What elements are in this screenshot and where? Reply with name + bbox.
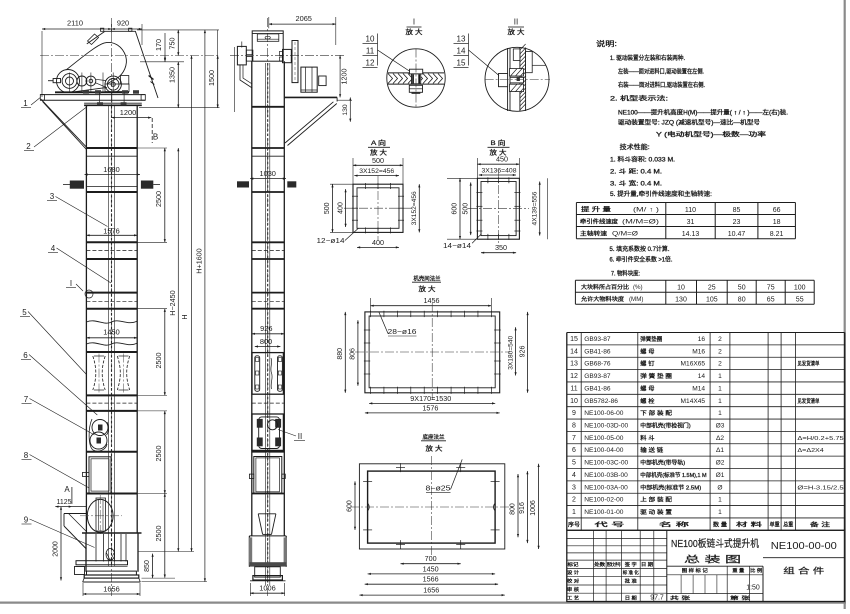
svg-text:螺 母: 螺 母 xyxy=(640,347,654,355)
svg-text:H: H xyxy=(180,314,189,319)
svg-text:GB68-76: GB68-76 xyxy=(584,361,611,368)
svg-text:4: 4 xyxy=(572,472,576,479)
svg-text:放 大: 放 大 xyxy=(426,444,444,453)
svg-text:100: 100 xyxy=(794,285,806,292)
svg-text:数 量: 数 量 xyxy=(713,520,727,528)
svg-text:1656: 1656 xyxy=(423,586,439,595)
svg-text:9: 9 xyxy=(572,410,576,417)
svg-text:9: 9 xyxy=(24,516,29,525)
svg-text:B 向: B 向 xyxy=(491,138,506,147)
svg-text:700: 700 xyxy=(425,554,437,563)
svg-text:2110: 2110 xyxy=(67,19,83,28)
svg-text:4X139=556: 4X139=556 xyxy=(531,191,538,225)
svg-text:2: 2 xyxy=(26,142,31,151)
svg-text:75: 75 xyxy=(767,285,775,292)
svg-text:1576: 1576 xyxy=(422,403,438,412)
svg-text:签 字: 签 字 xyxy=(625,561,637,567)
svg-text:23: 23 xyxy=(733,219,741,226)
svg-text:GB5782-86: GB5782-86 xyxy=(584,398,618,405)
svg-text:输 送 链: 输 送 链 xyxy=(640,446,663,454)
svg-text:10: 10 xyxy=(677,285,685,292)
svg-text:见发货清单: 见发货清单 xyxy=(797,397,819,405)
svg-text:标记: 标记 xyxy=(568,561,579,568)
svg-text:技术性能:: 技术性能: xyxy=(620,142,650,151)
svg-text:12: 12 xyxy=(570,373,578,380)
svg-text:组 合 件: 组 合 件 xyxy=(783,566,824,576)
svg-text:总 装 图: 总 装 图 xyxy=(684,554,741,565)
svg-text:11: 11 xyxy=(366,47,375,56)
svg-text:审 核: 审 核 xyxy=(567,586,579,593)
svg-text:920: 920 xyxy=(117,19,129,28)
svg-text:105: 105 xyxy=(706,297,718,304)
svg-text:2. 斗 距: 0.4 M.: 2. 斗 距: 0.4 M. xyxy=(610,169,662,176)
svg-text:10.47: 10.47 xyxy=(728,231,746,238)
svg-text:B: B xyxy=(153,133,158,142)
svg-text:12−ø14: 12−ø14 xyxy=(317,238,345,245)
svg-text:31: 31 xyxy=(687,219,695,226)
svg-text:6: 6 xyxy=(23,351,28,360)
svg-text:350: 350 xyxy=(495,243,507,252)
svg-text:(M/ ↑ ): (M/ ↑ ) xyxy=(633,208,659,214)
svg-text:13: 13 xyxy=(570,361,578,368)
svg-text:1200: 1200 xyxy=(340,69,349,85)
svg-text:2500: 2500 xyxy=(154,446,163,462)
svg-text:1. 料斗容积: 0.033 M.: 1. 料斗容积: 0.033 M. xyxy=(610,156,675,164)
svg-text:2. 机型表示法:: 2. 机型表示法: xyxy=(610,95,668,103)
svg-text:3X152=456: 3X152=456 xyxy=(359,168,394,175)
svg-text:重 量: 重 量 xyxy=(732,567,744,574)
svg-text:1: 1 xyxy=(718,509,722,516)
svg-text:Δ2: Δ2 xyxy=(716,435,724,442)
svg-text:NE100-00-00: NE100-00-00 xyxy=(771,540,837,552)
svg-text:110: 110 xyxy=(685,207,696,214)
svg-text:NE100-06-00: NE100-06-00 xyxy=(584,410,624,417)
svg-text:II: II xyxy=(514,18,518,27)
svg-text:NE100-04-00: NE100-04-00 xyxy=(584,447,624,454)
svg-text:850: 850 xyxy=(144,560,151,572)
svg-text:2: 2 xyxy=(718,361,722,368)
svg-text:更改文件号: 更改文件号 xyxy=(607,561,621,568)
svg-text:GB41-86: GB41-86 xyxy=(584,385,611,392)
svg-text:500: 500 xyxy=(462,203,469,215)
svg-text:400: 400 xyxy=(337,202,344,214)
svg-text:NE100-05-00: NE100-05-00 xyxy=(584,435,624,442)
svg-text:标 准 化: 标 准 化 xyxy=(623,569,639,576)
svg-text:Δ=H/0.2+5.75: Δ=H/0.2+5.75 xyxy=(797,436,843,442)
svg-text:(%): (%) xyxy=(633,284,643,291)
svg-text:8: 8 xyxy=(24,451,29,460)
svg-text:80: 80 xyxy=(738,297,746,304)
svg-text:1680: 1680 xyxy=(103,165,119,174)
svg-text:9X170=1530: 9X170=1530 xyxy=(410,394,451,403)
svg-text:下 部 装 配: 下 部 装 配 xyxy=(640,409,672,417)
svg-text:H−2450: H−2450 xyxy=(168,290,177,315)
svg-text:15: 15 xyxy=(457,59,466,68)
svg-text:A 向: A 向 xyxy=(371,138,386,147)
svg-text:H+1600: H+1600 xyxy=(194,248,203,273)
svg-text:8−ø25: 8−ø25 xyxy=(426,483,451,492)
svg-text:(M/M=Ø): (M/M=Ø) xyxy=(622,220,659,226)
svg-text:主轴转速: 主轴转速 xyxy=(580,230,607,238)
svg-text:底座法兰: 底座法兰 xyxy=(423,433,445,441)
svg-text:3. 斗 宽: 0.4 M.: 3. 斗 宽: 0.4 M. xyxy=(610,180,662,188)
svg-text:Δ1: Δ1 xyxy=(716,447,724,454)
svg-text:1450: 1450 xyxy=(423,564,439,573)
svg-text:1: 1 xyxy=(718,398,722,405)
svg-text:18: 18 xyxy=(773,219,781,226)
svg-text:2000: 2000 xyxy=(53,541,60,557)
svg-text:800: 800 xyxy=(510,503,517,515)
svg-text:1350: 1350 xyxy=(168,67,177,83)
svg-text:800: 800 xyxy=(260,337,272,346)
svg-text:600: 600 xyxy=(346,500,353,512)
svg-text:NE100-03D-00: NE100-03D-00 xyxy=(584,423,628,430)
svg-text:600: 600 xyxy=(452,203,459,215)
svg-text:图 样 标 记: 图 样 标 记 xyxy=(682,567,708,574)
svg-text:1200: 1200 xyxy=(120,108,136,117)
svg-text:7. 物料块度:: 7. 物料块度: xyxy=(611,270,640,278)
svg-text:弹簧垫圈: 弹簧垫圈 xyxy=(640,335,662,343)
svg-text:2: 2 xyxy=(718,336,722,343)
svg-text:880: 880 xyxy=(337,348,344,360)
svg-text:1:50: 1:50 xyxy=(746,585,760,592)
svg-text:1: 1 xyxy=(718,373,722,380)
svg-text:右装——面对进料口,驱动装置在右侧.: 右装——面对进料口,驱动装置在右侧. xyxy=(618,81,705,89)
svg-text:1: 1 xyxy=(718,497,722,504)
svg-text:4: 4 xyxy=(51,244,56,253)
svg-text:GB93-87: GB93-87 xyxy=(584,336,611,343)
svg-text:批 准: 批 准 xyxy=(625,578,637,585)
svg-text:说明:: 说明: xyxy=(596,39,617,48)
svg-text:10: 10 xyxy=(366,35,375,44)
svg-text:2500: 2500 xyxy=(154,526,163,542)
svg-text:14: 14 xyxy=(698,373,706,380)
svg-text:中部机壳(带导轨): 中部机壳(带导轨) xyxy=(640,459,685,467)
svg-text:500: 500 xyxy=(372,156,384,165)
svg-text:放 大: 放 大 xyxy=(508,27,526,36)
svg-text:16: 16 xyxy=(698,336,706,343)
svg-text:GB93-87: GB93-87 xyxy=(584,373,611,380)
svg-text:驱动装置型号: JZQ (减速机型号)—速比—机型号: 驱动装置型号: JZQ (减速机型号)—速比—机型号 xyxy=(618,119,760,127)
svg-text:工 艺: 工 艺 xyxy=(567,595,579,601)
svg-text:大块料所占百分比: 大块料所占百分比 xyxy=(581,283,629,291)
svg-text:NE100-03B-00: NE100-03B-00 xyxy=(584,472,628,479)
svg-text:名 称: 名 称 xyxy=(659,520,689,528)
svg-text:螺 钉: 螺 钉 xyxy=(640,360,654,368)
svg-text:Ø1: Ø1 xyxy=(716,472,725,479)
svg-text:400: 400 xyxy=(372,238,384,247)
svg-text:M16X65: M16X65 xyxy=(681,361,706,368)
svg-text:序号: 序号 xyxy=(568,520,580,528)
svg-text:Ø=H-3.15/2.5: Ø=H-3.15/2.5 xyxy=(797,485,843,491)
svg-text:GB41-86: GB41-86 xyxy=(584,348,611,355)
svg-text:2: 2 xyxy=(718,348,722,355)
svg-text:5. 填充系数按 0.7计算.: 5. 填充系数按 0.7计算. xyxy=(610,245,670,253)
svg-text:6. 牵引件安全系数 >1倍.: 6. 牵引件安全系数 >1倍. xyxy=(610,256,673,264)
svg-text:总重: 总重 xyxy=(783,520,794,528)
svg-text:1: 1 xyxy=(718,410,722,417)
svg-text:5: 5 xyxy=(22,308,27,317)
svg-text:14.13: 14.13 xyxy=(682,231,700,238)
svg-text:材 料: 材 料 xyxy=(736,520,762,528)
svg-text:Ø2: Ø2 xyxy=(716,460,725,467)
svg-text:共 张: 共 张 xyxy=(670,594,691,601)
svg-text:97.7: 97.7 xyxy=(650,595,664,602)
svg-text:Δ=Δ2X4: Δ=Δ2X4 xyxy=(797,448,823,454)
svg-text:螺 栓: 螺 栓 xyxy=(640,397,654,405)
svg-text:1576: 1576 xyxy=(103,227,119,236)
svg-text:12: 12 xyxy=(366,59,375,68)
svg-text:A: A xyxy=(64,485,70,494)
svg-text:Q/M=Ø: Q/M=Ø xyxy=(612,232,638,238)
svg-text:1450: 1450 xyxy=(103,328,119,337)
svg-text:55: 55 xyxy=(796,297,804,304)
svg-text:1656: 1656 xyxy=(103,585,119,594)
svg-text:1. 驱动装置分左装和右装两种.: 1. 驱动装置分左装和右装两种. xyxy=(610,54,685,62)
svg-text:2500: 2500 xyxy=(154,353,163,369)
svg-text:II: II xyxy=(298,432,302,441)
svg-text:2065: 2065 xyxy=(295,14,311,23)
svg-text:1456: 1456 xyxy=(424,296,440,305)
svg-text:3X136=408: 3X136=408 xyxy=(482,167,517,174)
svg-text:日 期: 日 期 xyxy=(625,595,637,601)
svg-text:916: 916 xyxy=(519,502,526,514)
svg-text:750: 750 xyxy=(168,38,177,50)
svg-text:见发货清单: 见发货清单 xyxy=(797,360,819,368)
svg-text:25: 25 xyxy=(708,285,716,292)
svg-text:NE100-03A-00: NE100-03A-00 xyxy=(584,484,628,491)
svg-text:NE100——提升机高度H(M)——提升量( ↑ / ↑: NE100——提升机高度H(M)——提升量( ↑ / ↑ )——左(右)装. xyxy=(618,109,788,117)
svg-text:806: 806 xyxy=(350,348,357,360)
svg-text:7: 7 xyxy=(24,395,29,404)
svg-text:校 对: 校 对 xyxy=(567,578,579,585)
svg-text:允许大物料块度: 允许大物料块度 xyxy=(581,295,624,303)
svg-text:放 大: 放 大 xyxy=(419,284,437,293)
svg-text:130: 130 xyxy=(342,104,349,116)
svg-text:处数: 处数 xyxy=(594,561,605,568)
svg-text:1566: 1566 xyxy=(423,575,439,584)
svg-text:M14X45: M14X45 xyxy=(681,398,706,405)
svg-text:Ø3: Ø3 xyxy=(716,423,725,430)
svg-text:Ø: Ø xyxy=(717,484,722,491)
svg-text:1: 1 xyxy=(718,385,722,392)
svg-text:170: 170 xyxy=(154,39,163,51)
svg-text:1006: 1006 xyxy=(530,500,537,516)
svg-text:5: 5 xyxy=(572,460,576,467)
svg-text:50: 50 xyxy=(738,285,746,292)
svg-text:比 例: 比 例 xyxy=(750,567,762,574)
svg-text:代 号: 代 号 xyxy=(595,520,625,528)
svg-text:3X152=456: 3X152=456 xyxy=(411,191,418,225)
svg-text:13: 13 xyxy=(457,35,466,44)
svg-text:提 升 量: 提 升 量 xyxy=(581,206,611,214)
svg-text:NE100板链斗式提升机: NE100板链斗式提升机 xyxy=(671,537,759,550)
svg-text:第 张: 第 张 xyxy=(730,594,751,601)
svg-text:5. 提升量,牵引件线速度和主轴转速:: 5. 提升量,牵引件线速度和主轴转速: xyxy=(610,190,712,198)
svg-text:8.21: 8.21 xyxy=(770,231,784,238)
svg-text:1006: 1006 xyxy=(259,584,275,593)
svg-text:NE100-02-00: NE100-02-00 xyxy=(584,497,624,504)
svg-text:M14: M14 xyxy=(692,385,705,392)
svg-text:左装——面对进料口,驱动装置在左侧.: 左装——面对进料口,驱动装置在左侧. xyxy=(618,68,704,76)
svg-text:I: I xyxy=(413,18,415,27)
svg-text:28−ø16: 28−ø16 xyxy=(388,327,417,336)
svg-text:料 斗: 料 斗 xyxy=(640,434,654,442)
svg-text:放 大: 放 大 xyxy=(406,27,424,36)
svg-text:8: 8 xyxy=(572,423,576,430)
svg-text:单重: 单重 xyxy=(770,520,781,528)
svg-text:中部机壳(标准节 1.5M),1 M: 中部机壳(标准节 1.5M),1 M xyxy=(640,471,706,479)
svg-text:14: 14 xyxy=(457,47,466,56)
svg-text:日 期: 日 期 xyxy=(641,562,653,568)
svg-text:1125: 1125 xyxy=(57,499,72,506)
svg-text:3: 3 xyxy=(50,192,55,201)
svg-text:1: 1 xyxy=(23,99,28,108)
svg-text:驱 动 装 置: 驱 动 装 置 xyxy=(640,508,672,516)
svg-text:设 计: 设 计 xyxy=(567,569,579,576)
svg-text:3: 3 xyxy=(572,484,576,491)
svg-text:中部机壳(带检视门): 中部机壳(带检视门) xyxy=(640,422,690,430)
svg-text:机壳间法兰: 机壳间法兰 xyxy=(414,275,441,283)
svg-text:中部机壳(标准节 2.5M): 中部机壳(标准节 2.5M) xyxy=(640,483,701,491)
svg-text:NE100-01-00: NE100-01-00 xyxy=(584,509,624,516)
svg-text:14: 14 xyxy=(570,348,578,355)
svg-text:2: 2 xyxy=(572,497,576,504)
svg-text:NE100-03C-00: NE100-03C-00 xyxy=(584,460,628,467)
svg-text:926: 926 xyxy=(519,346,526,358)
svg-text:1500: 1500 xyxy=(207,70,216,86)
svg-text:65: 65 xyxy=(767,297,775,304)
svg-text:15: 15 xyxy=(570,336,578,343)
svg-text:螺 母: 螺 母 xyxy=(640,384,654,392)
svg-text:2500: 2500 xyxy=(154,191,163,207)
svg-text:上 部 装 配: 上 部 装 配 xyxy=(640,496,672,504)
svg-text:7: 7 xyxy=(572,435,576,442)
svg-text:(MM): (MM) xyxy=(629,296,643,303)
svg-text:926: 926 xyxy=(260,324,272,333)
svg-text:M16: M16 xyxy=(692,348,705,355)
svg-text:Y (电动机型号)—极数—功率: Y (电动机型号)—极数—功率 xyxy=(656,131,766,139)
svg-text:备 注: 备 注 xyxy=(810,520,830,528)
svg-text:弹 簧 垫 圈: 弹 簧 垫 圈 xyxy=(640,372,672,380)
svg-text:1: 1 xyxy=(572,509,576,516)
svg-text:3X180=540: 3X180=540 xyxy=(507,336,514,370)
svg-text:66: 66 xyxy=(773,207,781,214)
svg-text:450: 450 xyxy=(496,155,508,164)
svg-text:1030: 1030 xyxy=(259,169,275,178)
svg-text:10: 10 xyxy=(570,398,578,405)
svg-text:11: 11 xyxy=(570,385,577,392)
svg-text:85: 85 xyxy=(733,207,741,214)
svg-text:500: 500 xyxy=(324,202,331,214)
svg-text:I: I xyxy=(70,279,72,288)
svg-text:牵引件线速度: 牵引件线速度 xyxy=(580,218,618,226)
svg-text:130: 130 xyxy=(675,297,687,304)
svg-text:14−ø14: 14−ø14 xyxy=(443,243,471,250)
svg-text:6: 6 xyxy=(572,447,576,454)
